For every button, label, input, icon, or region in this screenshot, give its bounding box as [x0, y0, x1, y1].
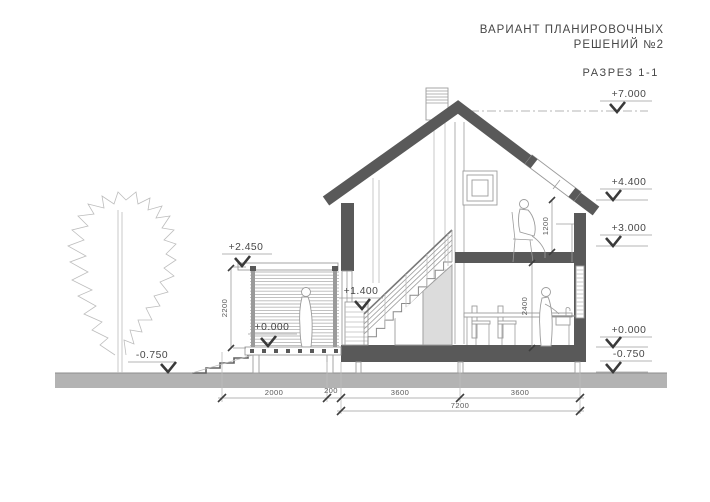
page-title-line2: РЕШЕНИЙ №2 — [574, 38, 664, 51]
elevation-mark: +3.000 — [600, 223, 652, 246]
elevation-value: +0.000 — [612, 325, 647, 336]
left-wall — [341, 203, 354, 271]
elevation-mark: +2.450 — [222, 242, 272, 266]
elevation-mark: +4.400 — [600, 177, 652, 200]
drawing-sheet: 2200 1200 2400 2000 200 3600 3600 7200 — [0, 0, 710, 502]
elevation-mark: +7.000 — [600, 89, 652, 112]
dim-label-7200: 7200 — [451, 401, 470, 410]
terrace-post — [251, 271, 255, 347]
roof — [326, 107, 596, 211]
elevation-value: +0.000 — [255, 322, 290, 333]
dim-label-2000: 2000 — [265, 388, 284, 397]
dim-label-3600-right: 3600 — [511, 388, 530, 397]
dim-label-1200: 1200 — [541, 217, 550, 236]
chair — [498, 306, 516, 345]
terrace-post — [333, 271, 337, 347]
chair — [472, 306, 490, 345]
right-wall — [574, 213, 586, 362]
roof-window — [525, 155, 581, 201]
terrace-person — [300, 288, 313, 348]
interior-window — [463, 171, 497, 205]
dim-attic-knee: 1200 — [541, 197, 555, 255]
page-title-line1: ВАРИАНТ ПЛАНИРОВОЧНЫХ — [480, 24, 664, 36]
elevation-value: -0.750 — [613, 349, 645, 360]
elevation-value: +4.400 — [612, 177, 647, 188]
middle-wall — [455, 122, 464, 344]
dim-floor-height: 2400 — [520, 260, 535, 351]
tree — [68, 192, 176, 373]
dim-terrace-height: 2200 — [220, 265, 246, 351]
kitchen-sink — [552, 308, 576, 326]
elevation-value: +1.400 — [344, 286, 379, 297]
elevation-mark: +0.000 — [600, 325, 652, 347]
terrace — [238, 263, 341, 373]
elevation-mark: -0.750 — [600, 349, 652, 372]
drawing-label: РАЗРЕЗ 1-1 — [583, 67, 660, 79]
section-drawing-svg: 2200 1200 2400 2000 200 3600 3600 7200 — [0, 0, 710, 502]
elevation-value: +3.000 — [612, 223, 647, 234]
dim-label-3600-left: 3600 — [391, 388, 410, 397]
dim-label-200: 200 — [324, 386, 338, 395]
elevation-value: +7.000 — [612, 89, 647, 100]
dining-furniture — [464, 288, 576, 347]
second-floor-slab — [455, 252, 574, 263]
elevation-mark: -0.750 — [128, 350, 176, 372]
elevation-value: -0.750 — [136, 350, 168, 361]
ground-strip — [55, 373, 667, 388]
interior-duct — [373, 178, 379, 283]
title-block: ВАРИАНТ ПЛАНИРОВОЧНЫХ РЕШЕНИЙ №2 РАЗРЕЗ … — [480, 24, 664, 79]
ground-floor-slab — [341, 345, 586, 373]
dim-label-2400: 2400 — [520, 297, 529, 316]
dim-label-2200: 2200 — [220, 299, 229, 318]
elevation-marks-right: +7.000 +4.400 +3.000 +0.000 -0.750 — [600, 89, 652, 372]
elevation-value: +2.450 — [229, 242, 264, 253]
